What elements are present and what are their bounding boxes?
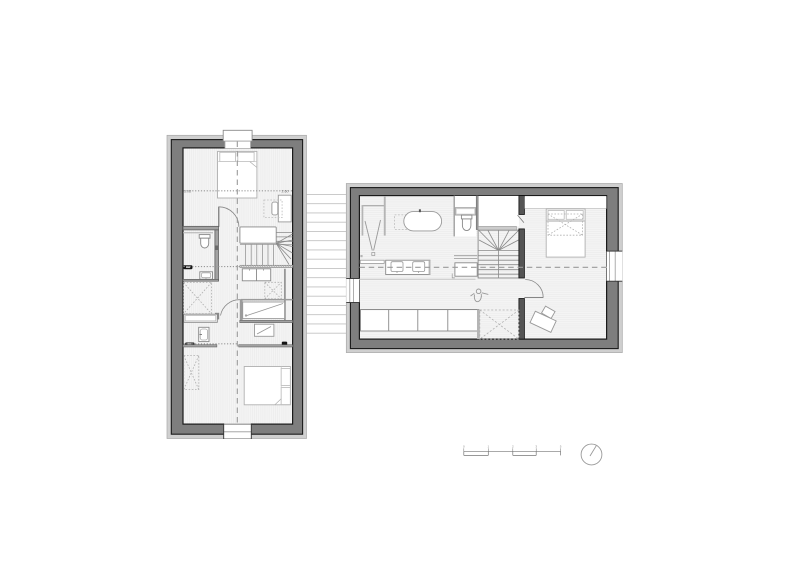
svg-text:2.60: 2.60 — [282, 190, 289, 194]
svg-text:3.08: 3.08 — [184, 190, 191, 194]
